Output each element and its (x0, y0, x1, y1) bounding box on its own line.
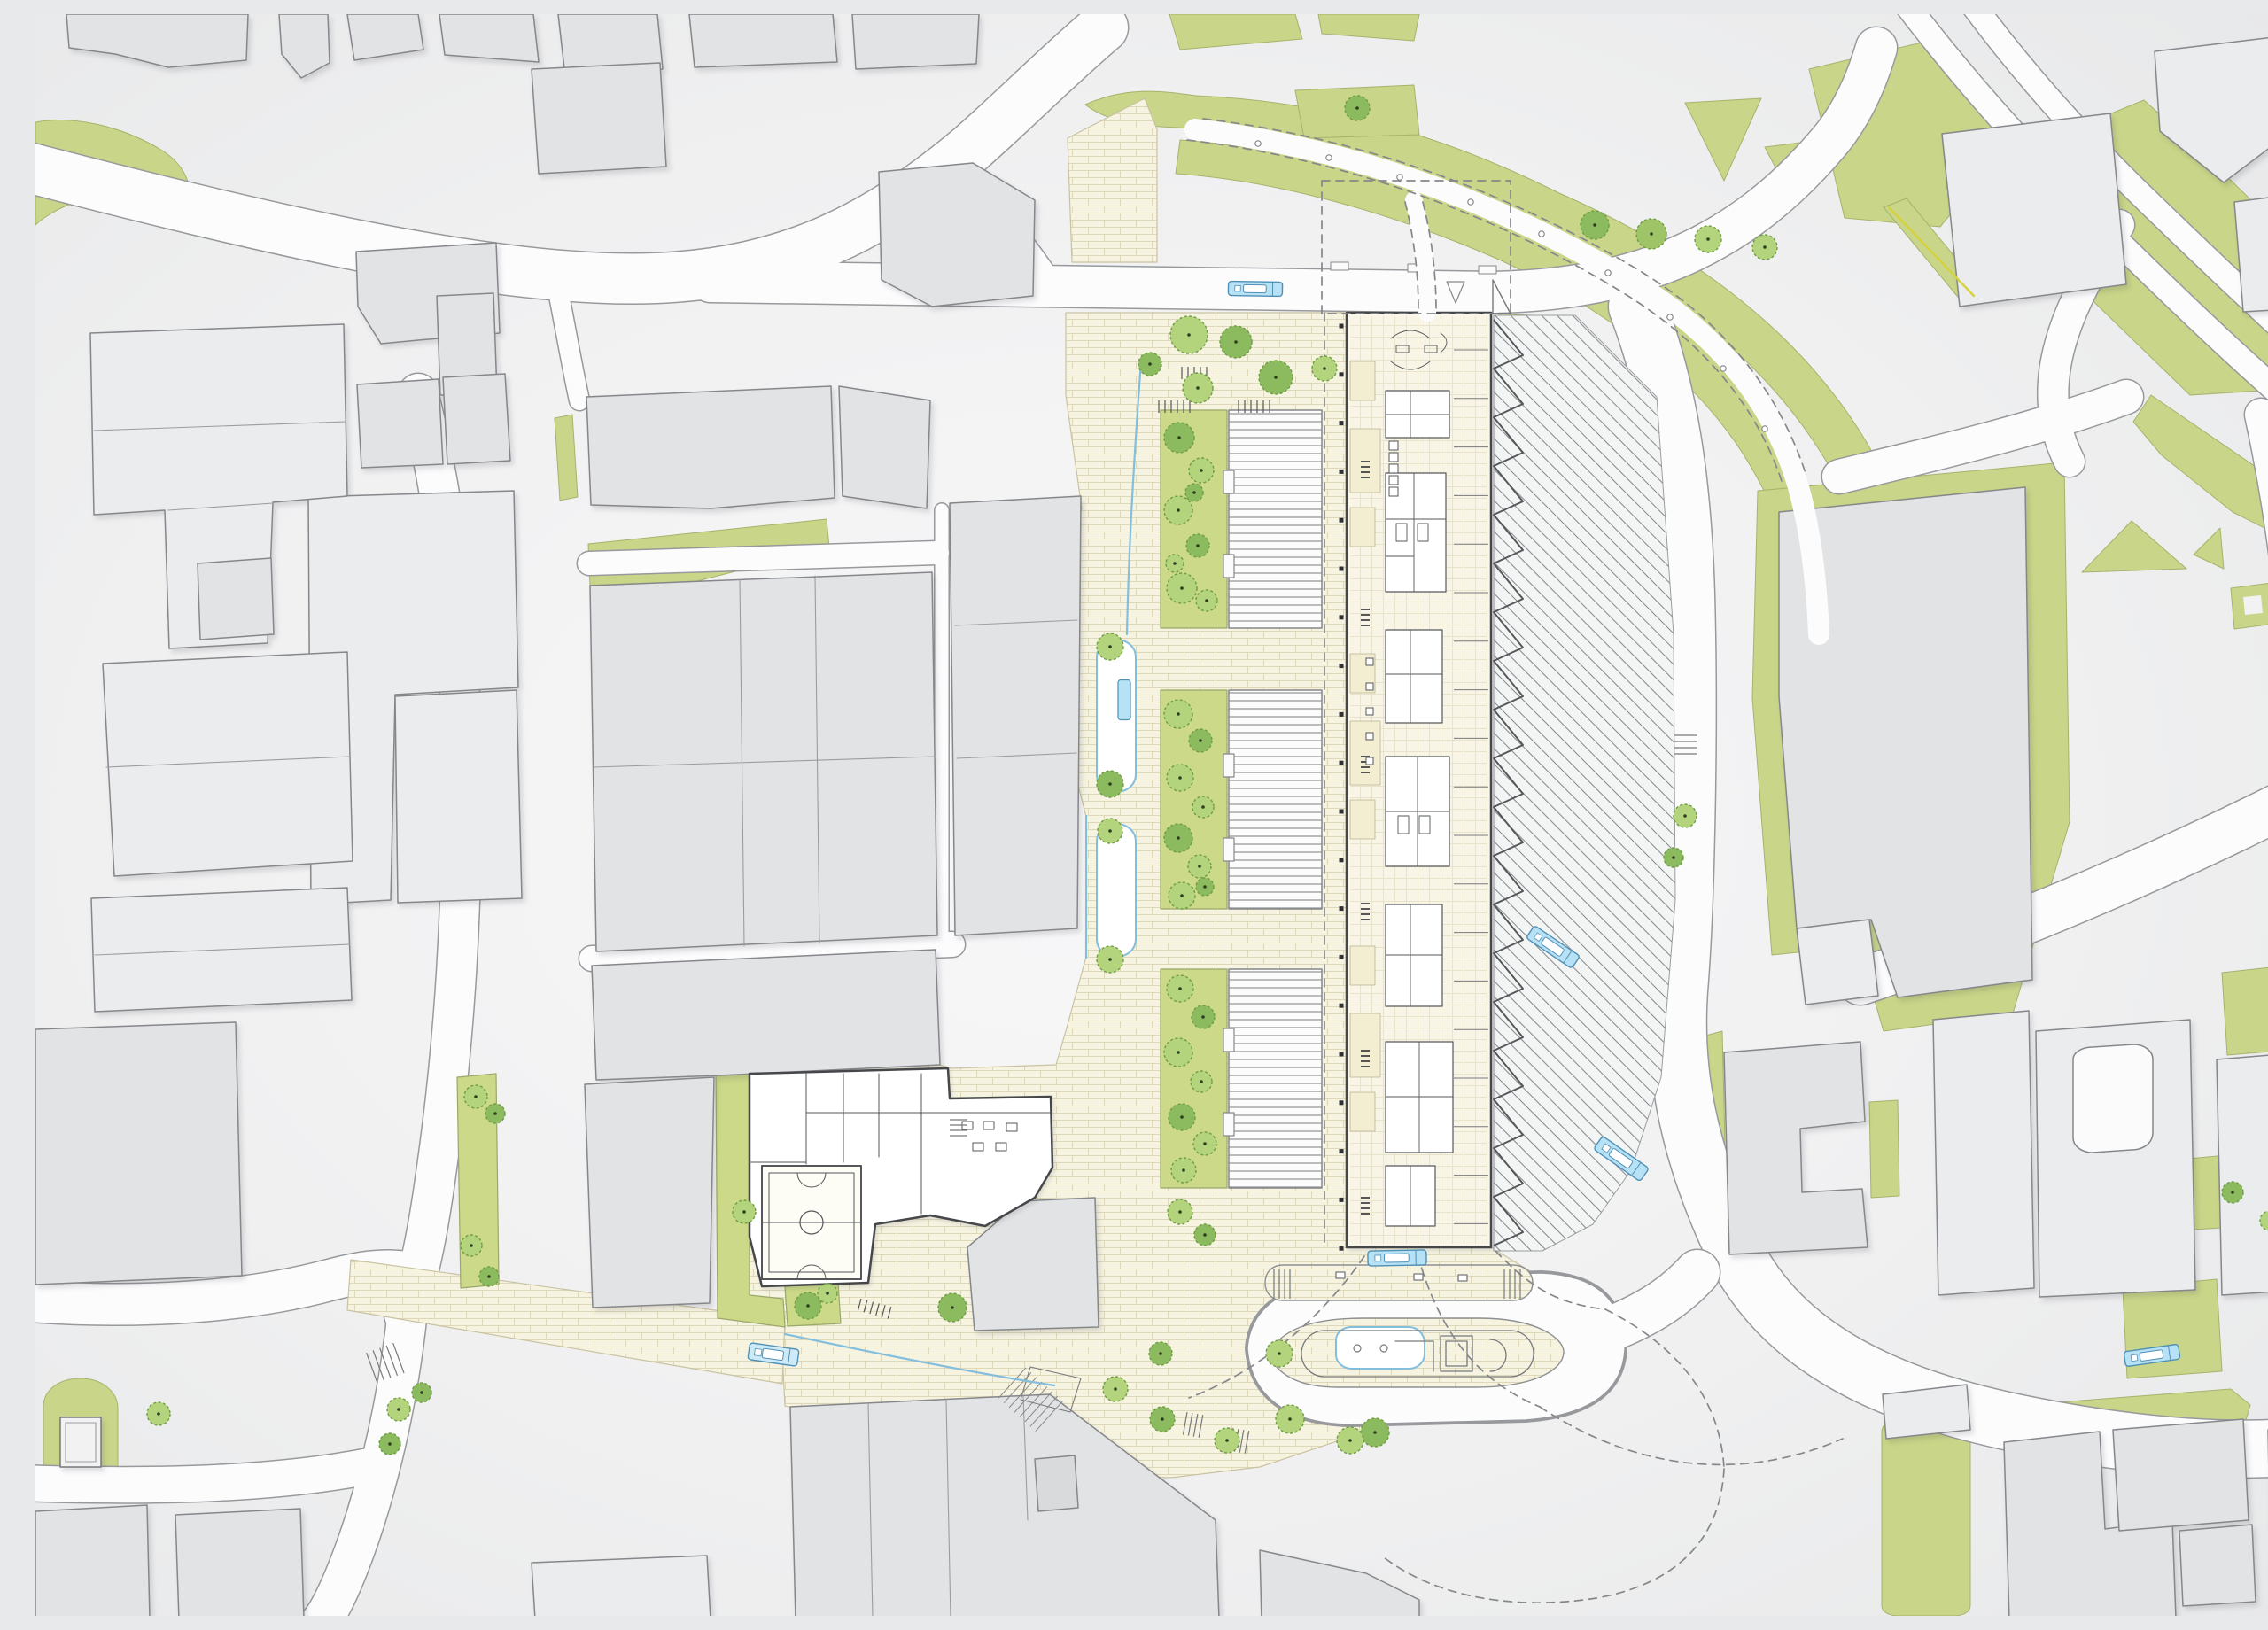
context-greens-shape-23 (1869, 1100, 1899, 1198)
tree-trunk-dot (1108, 645, 1112, 648)
context-buildings-shape-35 (1942, 113, 2126, 307)
bays-surface-shape-0 (1494, 315, 1675, 1251)
tree-trunk-dot (1200, 1080, 1203, 1083)
tree-trunk-dot (1178, 1210, 1182, 1214)
bollards-dot (1667, 314, 1673, 320)
kiosk-square (1366, 708, 1373, 715)
tree-trunk-dot (1187, 333, 1191, 337)
tree-trunk-dot (1148, 362, 1152, 366)
canopy-benches-shape-2 (1223, 754, 1234, 777)
context-buildings-shape-3 (439, 14, 539, 62)
tree-trunk-dot (1593, 223, 1596, 227)
context-buildings-shape-42 (2217, 1052, 2268, 1295)
tree-trunk-dot (806, 1304, 810, 1308)
canopy-benches-shape-4 (1223, 1028, 1234, 1052)
kiosk-square (1366, 757, 1373, 765)
canopies-shape-1 (1229, 690, 1322, 909)
context-buildings-shape-5 (532, 63, 666, 174)
tree-trunk-dot (1108, 958, 1112, 961)
masterplan-figure (35, 14, 2268, 1616)
context-buildings-shape-48 (60, 1417, 101, 1467)
tree-trunk-dot (1173, 562, 1177, 565)
context-buildings-shape-44 (2113, 1419, 2249, 1531)
tree-trunk-dot (397, 1408, 400, 1411)
canopies-shape-2 (1229, 969, 1322, 1188)
column-dot (1340, 664, 1344, 668)
bus-roof-panel (1244, 284, 1267, 292)
context-buildings-shape-27 (175, 1509, 304, 1616)
islands-shape-0 (1265, 1265, 1533, 1300)
column-dot (1340, 1198, 1344, 1202)
context-buildings-shape-39 (1933, 1011, 2034, 1295)
tree-trunk-dot (1180, 586, 1184, 590)
tree-trunk-dot (1225, 1439, 1229, 1442)
tree-trunk-dot (470, 1244, 473, 1247)
kiosk-square (1389, 464, 1398, 473)
context-buildings-shape-19 (585, 1077, 714, 1308)
context-greens-shape-20 (2243, 595, 2263, 615)
canopy-benches-shape-0 (1223, 470, 1234, 493)
bollards-dot (1539, 231, 1544, 237)
tree-trunk-dot (388, 1442, 392, 1446)
tree-trunk-dot (1177, 436, 1181, 439)
roads-surface-9 (35, 1465, 374, 1485)
road-furniture-shape-0 (1331, 262, 1348, 270)
context-greens-shape-28 (1882, 1417, 1970, 1616)
tree-trunk-dot (1159, 1352, 1162, 1355)
context-greens-shape-24 (2222, 964, 2268, 1055)
station-rooms-shape-4 (1386, 904, 1442, 1006)
context-buildings-shape-17 (395, 690, 522, 903)
bus-hatch (1235, 285, 1241, 291)
bollards-dot (1468, 199, 1473, 205)
bus-roof-panel (1384, 1254, 1409, 1262)
context-buildings-shape-22 (103, 652, 353, 876)
layer-canopies (1229, 410, 1322, 1188)
column-dot (1340, 1246, 1344, 1251)
tree-trunk-dot (1348, 1439, 1352, 1442)
tree-trunk-dot (1199, 739, 1202, 742)
tree-trunk-dot (1192, 491, 1196, 494)
tree-trunk-dot (493, 1112, 497, 1115)
station-pads-shape-4 (1350, 946, 1375, 985)
tree-trunk-dot (487, 1275, 491, 1278)
context-buildings-shape-13 (586, 386, 835, 508)
column-dot (1340, 615, 1344, 619)
bus-hatch (754, 1348, 762, 1356)
context-buildings-shape-47 (1883, 1385, 1970, 1439)
station-pads-shape-5 (1350, 1092, 1375, 1131)
context-buildings-shape-6 (689, 14, 837, 67)
kiosk-square (1366, 658, 1373, 665)
tree-trunk-dot (1278, 1352, 1281, 1355)
tree-trunk-dot (420, 1391, 423, 1394)
column-dot (1340, 518, 1344, 523)
context-buildings-shape-20 (839, 386, 930, 508)
bus-vehicle (1228, 281, 1282, 296)
oval-contents-shape-5 (1336, 1272, 1345, 1278)
column-dot (1340, 1100, 1344, 1105)
station-pads-shape-6 (1350, 429, 1380, 493)
station-pads-shape-1 (1350, 508, 1375, 547)
context-buildings-shape-28 (532, 1556, 711, 1616)
tree-trunk-dot (1706, 237, 1710, 241)
tree-trunk-dot (1198, 865, 1201, 868)
tree-trunk-dot (1180, 894, 1184, 897)
context-buildings-shape-26 (35, 1505, 150, 1616)
tree-trunk-dot (1672, 856, 1675, 859)
tree-trunk-dot (1205, 599, 1208, 602)
layer-bays-surface (1494, 315, 1675, 1251)
layer-islands (1265, 1265, 1564, 1387)
bollards-dot (1255, 141, 1261, 146)
tree-trunk-dot (1288, 1417, 1292, 1421)
oval-contents-shape-7 (1458, 1275, 1467, 1281)
kiosk-square (1389, 441, 1398, 450)
tree-trunk-dot (1203, 1233, 1207, 1237)
bollards-dot (1605, 270, 1611, 276)
station-rooms-shape-2 (1386, 630, 1442, 723)
rill-channels-shape-1 (1097, 824, 1136, 957)
station-rooms-shape-0 (1386, 391, 1449, 438)
tree-trunk-dot (1196, 386, 1200, 390)
column-dot (1340, 712, 1344, 717)
tree-trunk-dot (157, 1412, 160, 1416)
tree-trunk-dot (1203, 885, 1207, 889)
roads-surface-17 (589, 553, 937, 563)
kiosk-square (1366, 733, 1373, 740)
tree-trunk-dot (1196, 544, 1200, 547)
roads-surface-2 (711, 282, 1495, 292)
road-furniture-shape-2 (1479, 266, 1496, 274)
column-dot (1340, 421, 1344, 425)
context-buildings-shape-25 (35, 1022, 242, 1285)
column-dot (1340, 1004, 1344, 1008)
tree-trunk-dot (1180, 1115, 1184, 1119)
bus-hatch (2131, 1354, 2138, 1362)
column-dot (1340, 470, 1344, 474)
column-dot (1340, 858, 1344, 862)
fountain-basin (1118, 680, 1130, 720)
tree-trunk-dot (1177, 712, 1180, 716)
station-pads-shape-8 (1350, 1013, 1380, 1077)
tree-trunk-dot (1650, 232, 1653, 236)
station-pads-shape-3 (1350, 800, 1375, 839)
kiosk-square (1389, 487, 1398, 496)
context-buildings-shape-12 (443, 374, 510, 464)
tree-trunk-dot (1323, 367, 1326, 370)
tree-trunk-dot (1355, 106, 1359, 110)
context-buildings-shape-18 (592, 950, 940, 1080)
canopies-shape-0 (1229, 410, 1322, 628)
kiosk-square (1389, 453, 1398, 462)
context-buildings-shape-34 (1797, 920, 1878, 1005)
tree-trunk-dot (1177, 508, 1180, 512)
tree-trunk-dot (1178, 776, 1182, 780)
canopy-benches-shape-5 (1223, 1113, 1234, 1136)
tree-trunk-dot (1234, 340, 1238, 344)
context-buildings-shape-30 (1035, 1455, 1078, 1511)
station-pads-shape-7 (1350, 721, 1380, 785)
tree-trunk-dot (1177, 1051, 1180, 1054)
column-dot (1340, 955, 1344, 959)
tree-trunk-dot (1108, 782, 1112, 786)
tree-trunk-dot (951, 1306, 954, 1309)
column-dot (1340, 324, 1344, 329)
tree-trunk-dot (1373, 1431, 1377, 1434)
kiosk-square (1389, 476, 1398, 485)
tree-trunk-dot (1177, 836, 1180, 840)
tree-trunk-dot (2231, 1191, 2234, 1194)
water-feature (1118, 680, 1130, 720)
column-dot (1340, 372, 1344, 376)
column-dot (1340, 761, 1344, 765)
column-dot (1340, 567, 1344, 571)
site-plan-drawing (35, 14, 2268, 1616)
column-dot (1340, 1052, 1344, 1057)
tree-trunk-dot (1182, 1168, 1185, 1172)
bollards-dot (1720, 366, 1726, 371)
context-buildings-shape-45 (2179, 1525, 2256, 1606)
tree-trunk-dot (1178, 987, 1182, 990)
tree-trunk-dot (1201, 805, 1205, 809)
context-buildings-shape-41 (2073, 1044, 2153, 1153)
tree-trunk-dot (1683, 814, 1687, 818)
tree-trunk-dot (1274, 376, 1278, 379)
column-dot (1340, 1149, 1344, 1153)
tree-trunk-dot (1200, 469, 1203, 472)
tree-trunk-dot (1108, 829, 1112, 833)
tree-trunk-dot (1763, 245, 1767, 249)
oval-contents-shape-6 (1414, 1274, 1423, 1280)
column-dot (1340, 810, 1344, 814)
kiosk-square (1366, 683, 1373, 690)
bus-hatch (1375, 1255, 1381, 1261)
tree-trunk-dot (474, 1095, 478, 1098)
tree-trunk-dot (742, 1210, 746, 1214)
tree-trunk-dot (826, 1292, 829, 1295)
tree-trunk-dot (1203, 1142, 1207, 1145)
station-pads-shape-0 (1350, 361, 1375, 400)
context-buildings-shape-23 (198, 558, 274, 640)
bollards-dot (1326, 155, 1332, 160)
bollards-dot (1762, 426, 1767, 431)
context-buildings-shape-11 (357, 379, 443, 468)
bollards-dot (1397, 175, 1402, 180)
bus-vehicle (1368, 1250, 1426, 1266)
context-buildings-shape-14 (950, 496, 1081, 935)
column-dot (1340, 906, 1344, 911)
canopy-benches-shape-1 (1223, 555, 1234, 578)
canopy-benches-shape-3 (1223, 838, 1234, 861)
context-buildings-shape-7 (852, 14, 979, 69)
tree-trunk-dot (1201, 1015, 1205, 1019)
tree-trunk-dot (1161, 1417, 1164, 1421)
tree-trunk-dot (1114, 1387, 1117, 1391)
